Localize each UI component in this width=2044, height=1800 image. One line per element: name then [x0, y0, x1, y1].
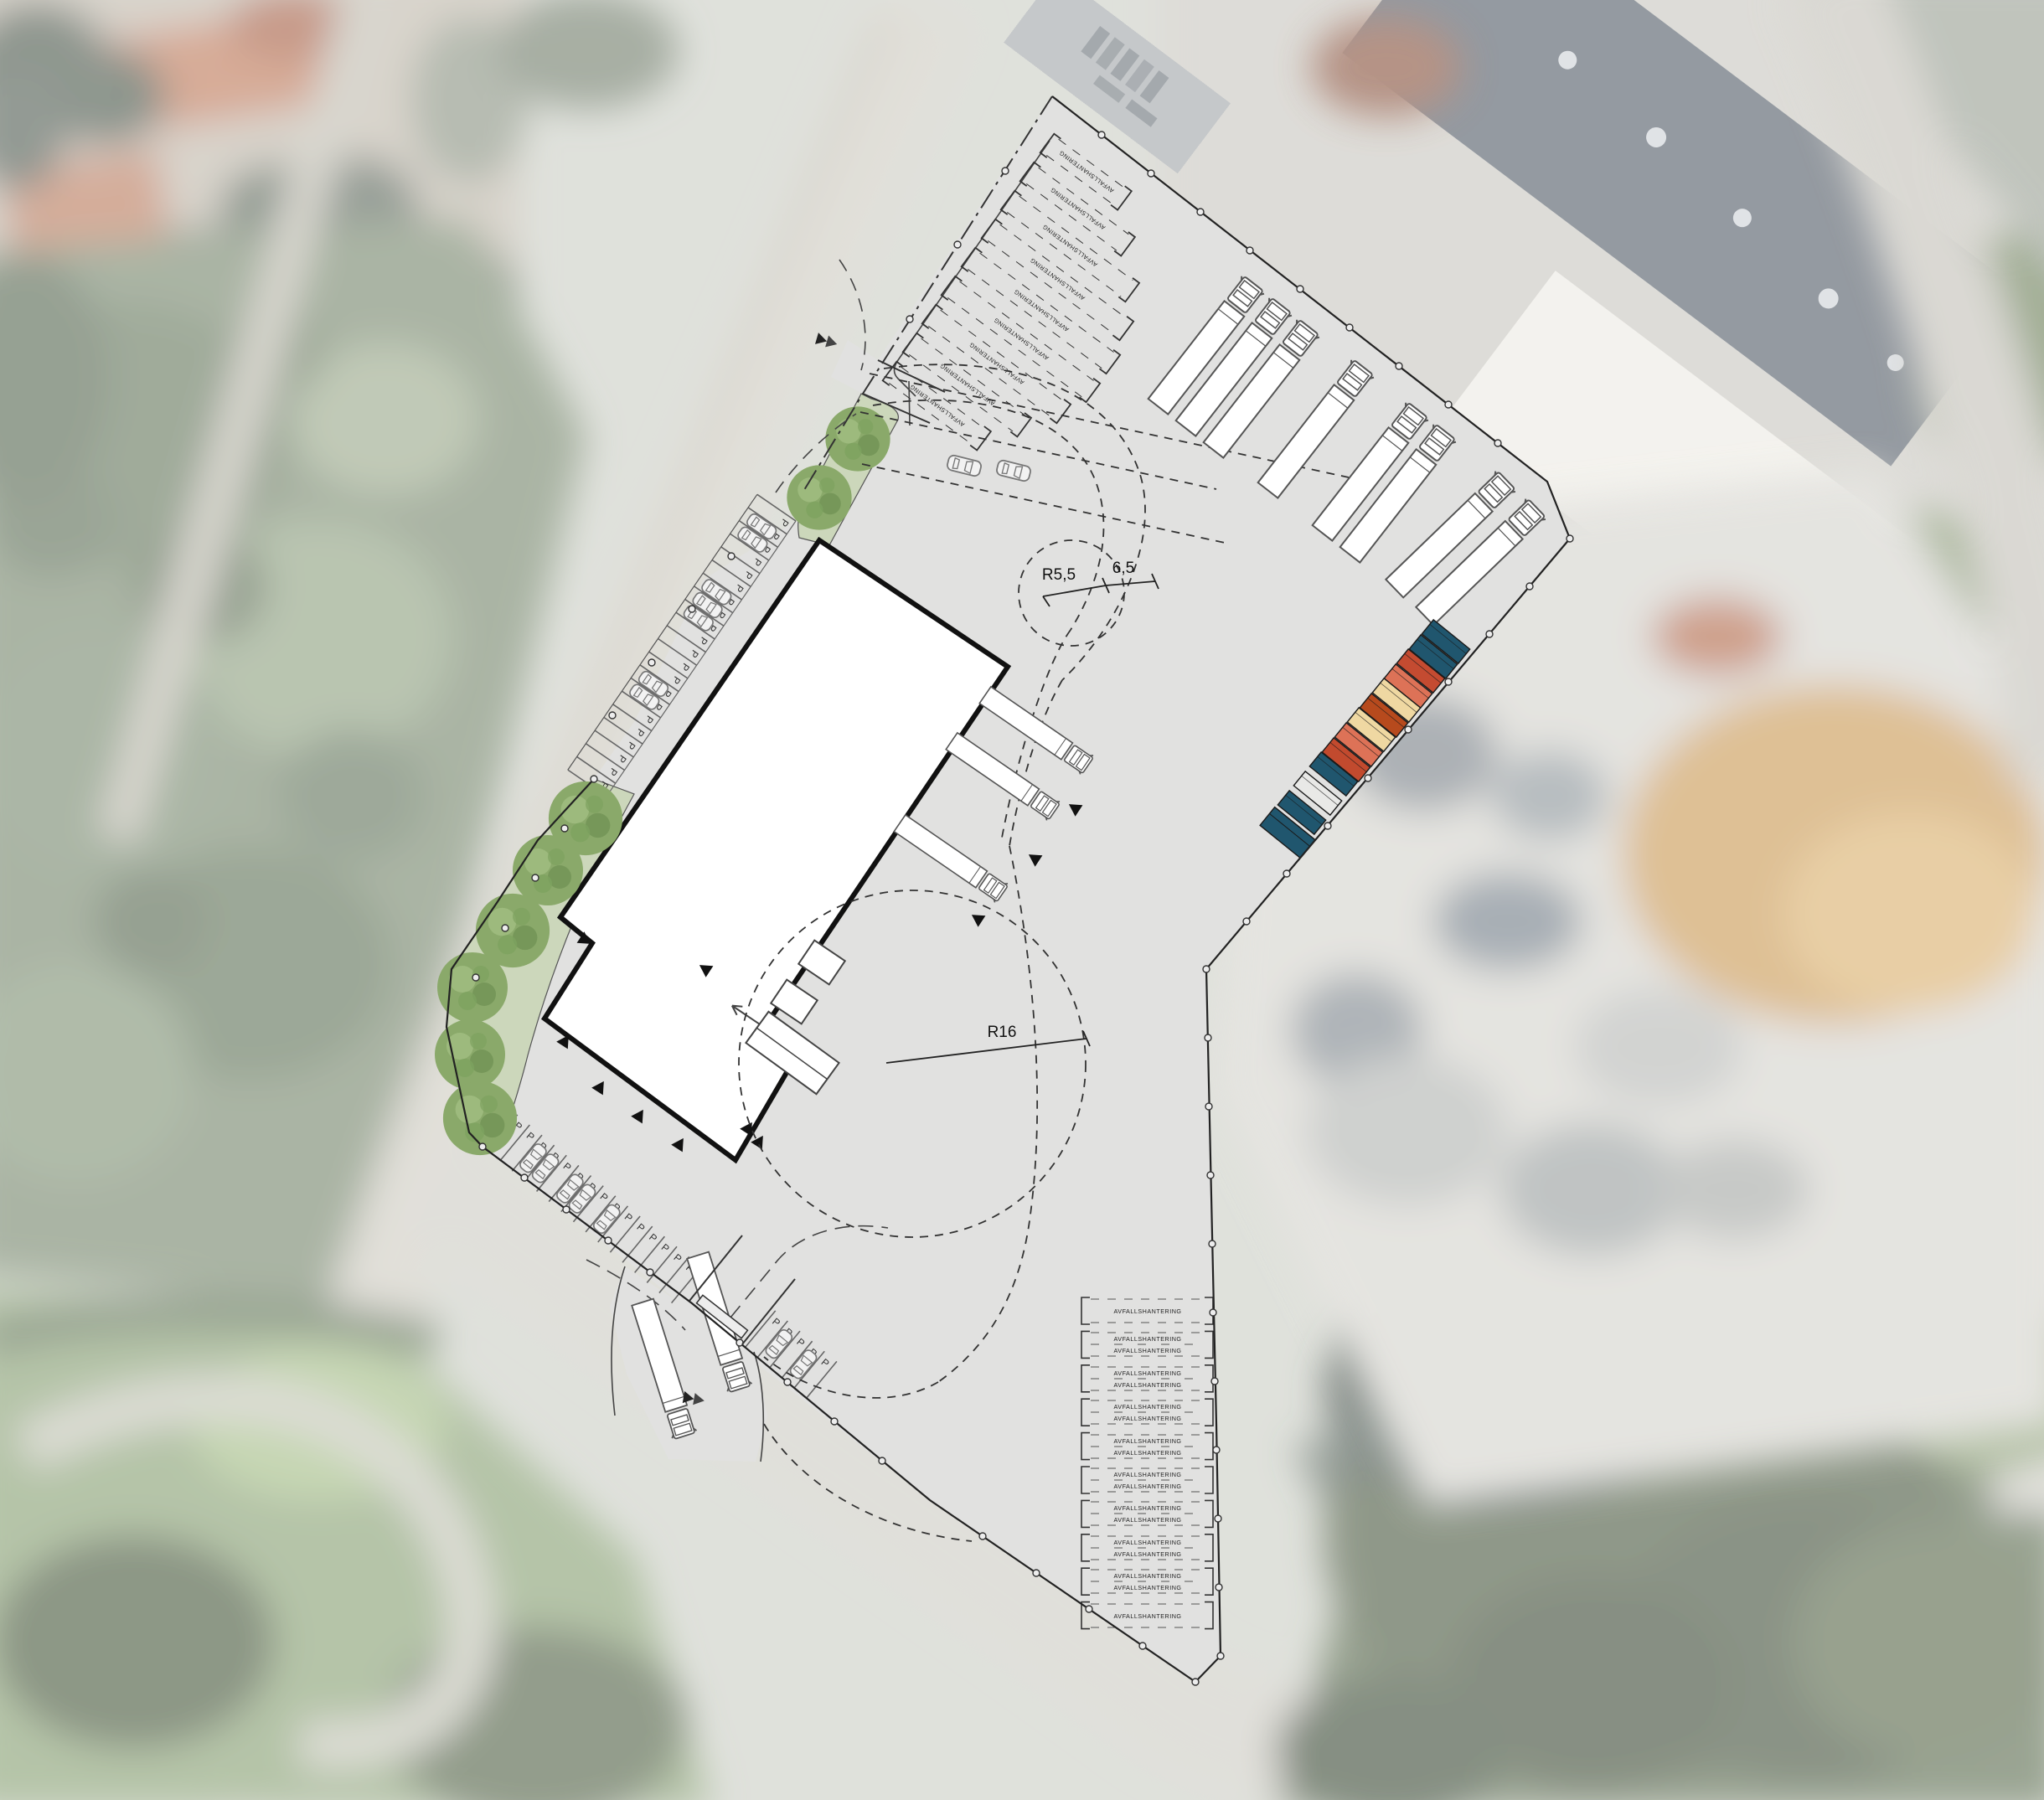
svg-text:AVFALLSHANTERING: AVFALLSHANTERING — [1114, 1516, 1182, 1524]
svg-text:AVFALLSHANTERING: AVFALLSHANTERING — [1114, 1584, 1182, 1591]
svg-text:AVFALLSHANTERING: AVFALLSHANTERING — [1114, 1415, 1182, 1422]
svg-text:AVFALLSHANTERING: AVFALLSHANTERING — [1114, 1471, 1182, 1478]
svg-text:AVFALLSHANTERING: AVFALLSHANTERING — [1114, 1381, 1182, 1389]
svg-text:AVFALLSHANTERING: AVFALLSHANTERING — [1114, 1307, 1182, 1315]
svg-text:R5,5: R5,5 — [1042, 566, 1076, 584]
svg-text:AVFALLSHANTERING: AVFALLSHANTERING — [1114, 1335, 1182, 1343]
svg-text:AVFALLSHANTERING: AVFALLSHANTERING — [1114, 1539, 1182, 1546]
svg-text:AVFALLSHANTERING: AVFALLSHANTERING — [1114, 1403, 1182, 1411]
svg-text:AVFALLSHANTERING: AVFALLSHANTERING — [1114, 1612, 1182, 1620]
svg-text:AVFALLSHANTERING: AVFALLSHANTERING — [1114, 1347, 1182, 1354]
svg-text:AVFALLSHANTERING: AVFALLSHANTERING — [1114, 1504, 1182, 1512]
svg-text:R16: R16 — [988, 1024, 1017, 1041]
svg-text:AVFALLSHANTERING: AVFALLSHANTERING — [1114, 1483, 1182, 1490]
svg-text:AVFALLSHANTERING: AVFALLSHANTERING — [1114, 1550, 1182, 1558]
svg-text:AVFALLSHANTERING: AVFALLSHANTERING — [1114, 1449, 1182, 1457]
svg-text:6,5: 6,5 — [1112, 560, 1134, 577]
svg-text:AVFALLSHANTERING: AVFALLSHANTERING — [1114, 1437, 1182, 1445]
svg-text:AVFALLSHANTERING: AVFALLSHANTERING — [1114, 1572, 1182, 1580]
svg-text:AVFALLSHANTERING: AVFALLSHANTERING — [1114, 1369, 1182, 1377]
